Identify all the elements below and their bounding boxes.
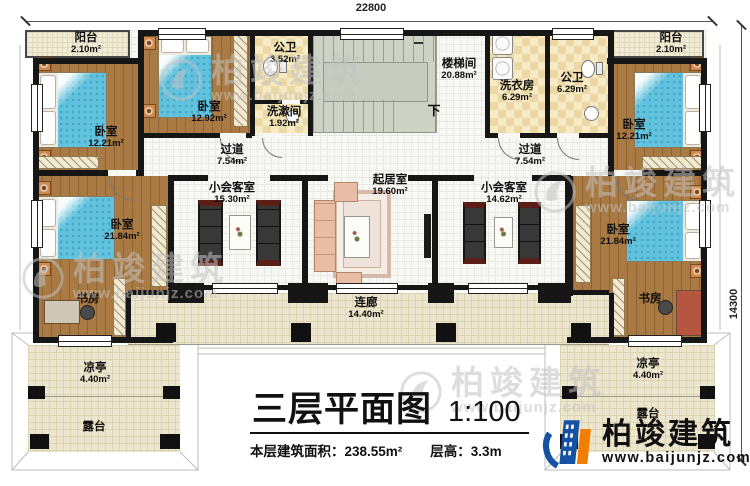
window — [58, 335, 112, 347]
column — [562, 386, 577, 399]
window — [31, 200, 43, 248]
wardrobe-hatch — [575, 205, 591, 283]
wall — [308, 30, 313, 136]
label-hall-left: 过道7.54m² — [217, 144, 247, 168]
label-stairs-down: 下 — [427, 104, 440, 119]
floor-height-text: 层高：3.3m — [430, 440, 501, 460]
label-bath1: 公卫3.52m² — [270, 42, 300, 66]
wall — [607, 58, 707, 64]
wall — [302, 175, 308, 291]
pavilion-right-divider — [560, 396, 715, 397]
wall-pier — [168, 283, 204, 303]
tv — [424, 214, 431, 258]
coffee-table — [344, 216, 370, 258]
wall — [432, 175, 438, 291]
wall — [250, 100, 310, 104]
label-terrace-left: 露台 — [83, 421, 106, 434]
window — [699, 84, 711, 132]
column — [160, 434, 180, 449]
column — [30, 434, 49, 449]
sofa-dark — [463, 202, 486, 264]
nightstand — [37, 262, 51, 276]
washing-machine — [492, 57, 513, 80]
label-bedroom-left: 卧室21.84m² — [104, 219, 139, 243]
label-study-left: 书房 — [77, 293, 100, 306]
title-block: 三层平面图 1:100 本层建筑面积：238.55m² 层高：3.3m — [250, 392, 529, 460]
drawing-scale: 1:100 — [448, 398, 521, 427]
window — [212, 283, 278, 294]
window — [628, 335, 682, 347]
label-study-right: 书房 — [639, 293, 662, 306]
dimension-right-line — [741, 25, 742, 462]
window — [31, 84, 43, 132]
label-balcony-left: 阳台2.10m² — [71, 32, 101, 56]
wall — [565, 290, 609, 295]
bed — [37, 196, 115, 260]
label-corridor: 连廊14.40m² — [348, 297, 383, 321]
wall — [609, 293, 614, 343]
wall — [128, 290, 172, 295]
brand-name: 柏竣建筑 — [602, 419, 750, 451]
window — [158, 28, 206, 40]
label-balcony-right: 阳台2.10m² — [656, 32, 686, 56]
wall — [138, 30, 144, 176]
brand-website: www.baijunjz.com — [602, 450, 750, 467]
door-opening — [262, 133, 282, 138]
wardrobe-hatch — [37, 156, 99, 169]
wardrobe-hatch — [642, 156, 704, 169]
wall — [565, 176, 573, 296]
desk — [44, 300, 80, 324]
door-opening — [220, 133, 246, 138]
wall — [432, 175, 474, 181]
window — [336, 283, 398, 294]
column — [700, 386, 715, 399]
window — [468, 283, 528, 294]
sofa-dark — [256, 200, 281, 266]
wall — [33, 58, 140, 64]
office-chair — [80, 305, 95, 320]
wall-pier — [288, 283, 328, 303]
sofa — [314, 200, 336, 272]
label-bedroom-right: 卧室21.84m² — [600, 224, 635, 248]
window — [699, 200, 711, 248]
stair-treads-bottom — [313, 100, 398, 133]
title-row: 三层平面图 1:100 — [250, 392, 529, 434]
dimension-right-value: 14300 — [728, 278, 740, 330]
wall — [168, 176, 174, 296]
stair-landing — [323, 62, 428, 102]
column — [436, 323, 456, 342]
door-opening — [614, 170, 642, 176]
wardrobe-hatch — [113, 278, 126, 336]
window — [340, 28, 404, 40]
wall — [270, 175, 306, 181]
column — [156, 323, 176, 342]
door-opening — [282, 100, 300, 104]
wall — [532, 175, 571, 181]
label-bath2: 公卫6.29m² — [557, 72, 587, 96]
label-reception-left: 小会客室15.30m² — [209, 182, 255, 206]
column — [28, 386, 45, 399]
label-washroom: 洗漱间1.92m² — [267, 106, 302, 130]
brand-text: 柏竣建筑 www.baijunjz.com — [602, 419, 750, 468]
nightstand — [142, 104, 156, 118]
tea-table — [229, 215, 251, 250]
wall — [545, 30, 550, 136]
wall — [608, 30, 614, 176]
sink — [584, 106, 599, 121]
column — [571, 323, 591, 342]
floor-area-text: 本层建筑面积：238.55m² — [250, 440, 402, 460]
label-reception-right: 小会客室14.62m² — [481, 182, 527, 206]
wardrobe-hatch — [233, 33, 248, 127]
nightstand — [37, 181, 51, 195]
door-opening — [498, 133, 520, 138]
wall — [250, 30, 255, 136]
label-living: 起居室19.60m² — [372, 174, 407, 198]
label-laundry: 洗衣房6.29m² — [500, 80, 535, 104]
wall — [168, 175, 208, 181]
nightstand — [142, 36, 156, 50]
door-opening — [108, 170, 136, 176]
title-info: 本层建筑面积：238.55m² 层高：3.3m — [250, 440, 529, 460]
sofa-dark — [198, 200, 223, 266]
sofa-dark — [518, 202, 541, 264]
tea-table — [494, 217, 513, 248]
label-stairwell: 楼梯间20.88m² — [441, 58, 476, 82]
pavilion-left-divider — [28, 396, 180, 397]
door-opening — [557, 133, 579, 138]
label-hall-right: 过道7.54m² — [515, 144, 545, 168]
label-pavilion-right: 凉亭4.40m² — [633, 358, 663, 382]
wardrobe-hatch — [151, 205, 167, 287]
label-bedroom-top2: 卧室12.92m² — [191, 101, 226, 125]
wall — [126, 293, 131, 343]
dimension-top-value: 22800 — [340, 2, 402, 14]
dimension-top-line — [25, 21, 713, 22]
floor-plan-canvas: 阳台2.10m² 卧室12.21m² 卧室12.92m² 公卫3.52m² 洗漱… — [0, 0, 750, 486]
armchair — [334, 182, 358, 202]
column — [163, 386, 180, 399]
corridor-edge — [128, 344, 609, 345]
column — [291, 323, 311, 342]
wall — [485, 30, 490, 136]
label-bedroom-tr: 卧室12.21m² — [616, 119, 651, 143]
label-pavilion-left: 凉亭4.40m² — [80, 362, 110, 386]
drawing-title: 三层平面图 — [252, 392, 432, 427]
label-bedroom-tl: 卧室12.21m² — [88, 126, 123, 150]
wall-pier — [428, 283, 454, 303]
bed — [626, 200, 704, 262]
desk — [676, 290, 704, 336]
toilet-tank — [596, 62, 603, 75]
brand-logo: 柏竣建筑 www.baijunjz.com — [540, 412, 750, 474]
brand-logo-icon — [540, 412, 596, 474]
window — [552, 28, 594, 40]
stair-direction-mark — [414, 42, 423, 44]
